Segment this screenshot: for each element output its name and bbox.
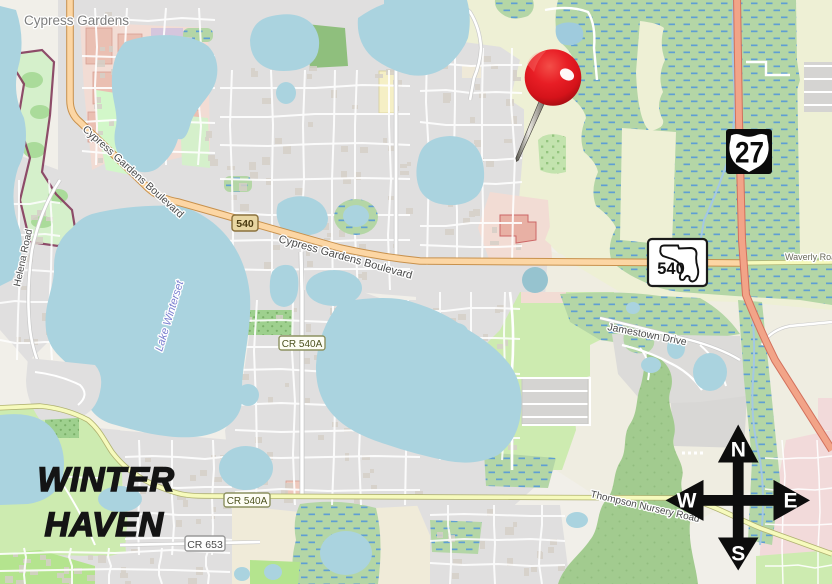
svg-text:540: 540	[657, 260, 685, 278]
svg-text:E: E	[783, 490, 797, 513]
svg-text:540: 540	[236, 218, 254, 230]
svg-text:W: W	[677, 490, 697, 513]
svg-text:CR 540A: CR 540A	[227, 496, 268, 507]
svg-text:Cypress Gardens: Cypress Gardens	[24, 13, 129, 28]
svg-text:27: 27	[735, 137, 764, 170]
svg-text:S: S	[731, 543, 745, 566]
svg-text:HAVEN: HAVEN	[45, 506, 165, 544]
svg-text:N: N	[731, 439, 746, 462]
svg-text:Waverly Road: Waverly Road	[785, 252, 832, 262]
svg-text:CR 540A: CR 540A	[282, 339, 323, 350]
svg-text:CR 653: CR 653	[187, 539, 223, 551]
svg-text:WINTER: WINTER	[37, 461, 174, 499]
